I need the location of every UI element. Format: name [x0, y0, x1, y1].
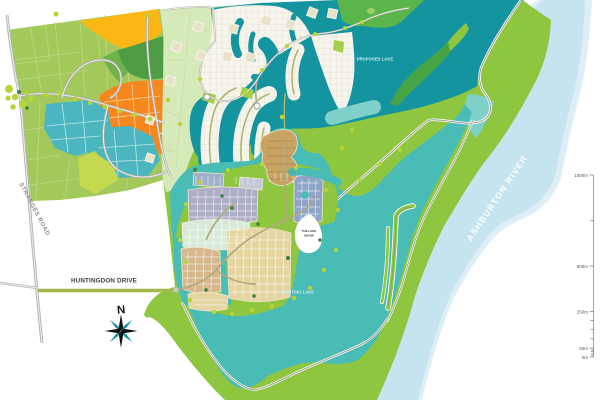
svg-text:PROPOSED LAKE: PROPOSED LAKE — [357, 57, 394, 62]
svg-text:1000m: 1000m — [574, 173, 588, 178]
svg-text:50m: 50m — [579, 346, 588, 351]
svg-text:HOUSE: HOUSE — [304, 234, 314, 238]
svg-text:0m: 0m — [582, 355, 589, 360]
svg-text:250m: 250m — [577, 309, 589, 314]
svg-text:THE LAKE: THE LAKE — [302, 229, 317, 233]
svg-text:N: N — [116, 304, 126, 317]
svg-text:EXISTING LAKE: EXISTING LAKE — [282, 290, 314, 295]
svg-text:HUNTINGDON DRIVE: HUNTINGDON DRIVE — [71, 278, 137, 285]
svg-text:500m: 500m — [577, 264, 589, 269]
